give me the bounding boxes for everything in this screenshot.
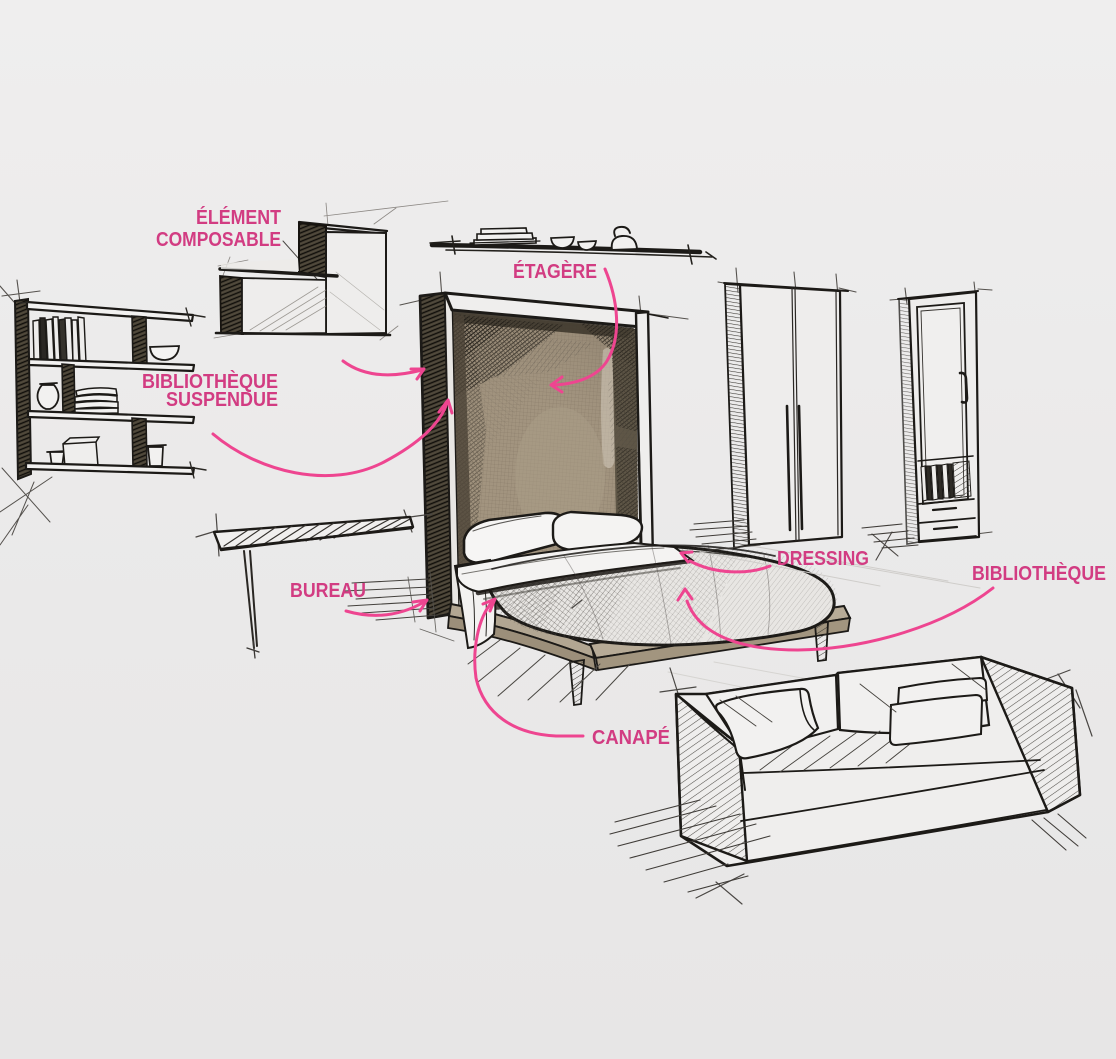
svg-text:CANAPÉ: CANAPÉ (592, 726, 670, 749)
svg-text:ÉTAGÈRE: ÉTAGÈRE (513, 260, 597, 283)
svg-text:BUREAU: BUREAU (290, 580, 366, 602)
svg-text:ÉLÉMENT: ÉLÉMENT (196, 206, 281, 229)
svg-text:DRESSING: DRESSING (777, 548, 869, 570)
svg-text:COMPOSABLE: COMPOSABLE (156, 229, 281, 251)
svg-text:SUSPENDUE: SUSPENDUE (166, 389, 278, 411)
svg-text:BIBLIOTHÈQUE: BIBLIOTHÈQUE (972, 562, 1106, 585)
